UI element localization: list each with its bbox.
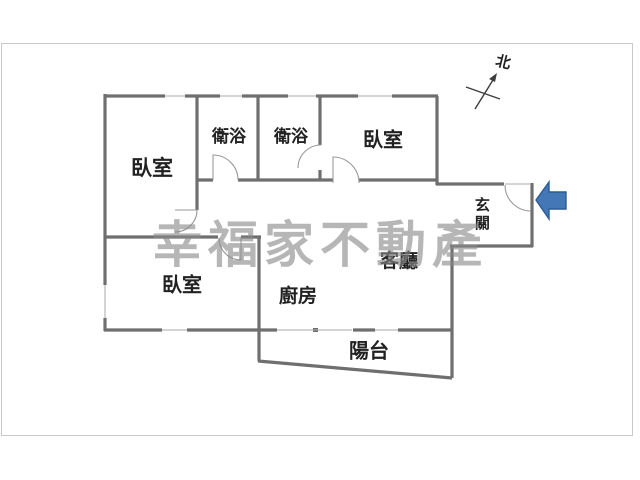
entrance-arrow-icon bbox=[536, 182, 566, 219]
room-label-kitchen: 廚房 bbox=[279, 287, 317, 307]
room-label-bathroom-right: 衛浴 bbox=[274, 128, 308, 146]
floorplan-image: 臥室 衛浴 衛浴 臥室 玄關 客廳 臥室 廚房 陽台 北 幸福家不動產 bbox=[0, 0, 640, 480]
agency-watermark: 幸福家不動產 bbox=[152, 205, 488, 277]
north-compass-icon bbox=[466, 73, 500, 109]
room-label-bedroom-lower: 臥室 bbox=[162, 276, 202, 297]
room-label-balcony: 陽台 bbox=[349, 342, 389, 363]
room-label-bathroom-left: 衛浴 bbox=[212, 128, 246, 146]
room-label-bedroom-upper-left: 臥室 bbox=[131, 158, 173, 180]
room-label-bedroom-right: 臥室 bbox=[363, 131, 403, 152]
